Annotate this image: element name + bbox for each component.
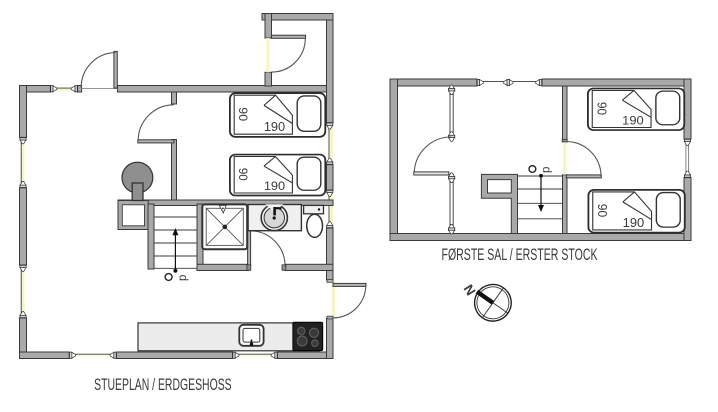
svg-text:FØRSTE SAL / ERSTER STOCK: FØRSTE SAL / ERSTER STOCK xyxy=(442,246,598,264)
svg-text:STUEPLAN / ERDGESHOSS: STUEPLAN / ERDGESHOSS xyxy=(94,376,232,394)
svg-text:p: p xyxy=(541,167,553,173)
svg-text:p: p xyxy=(177,275,189,281)
